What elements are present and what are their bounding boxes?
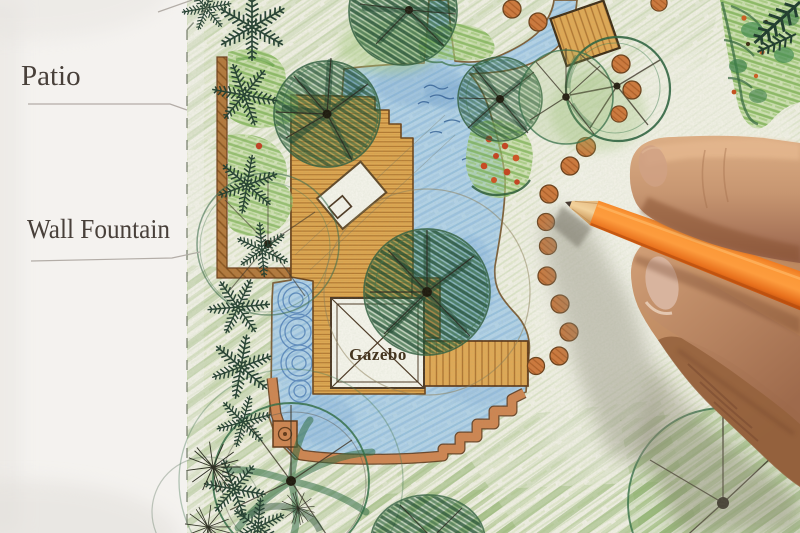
svg-text:Wall Fountain: Wall Fountain xyxy=(27,214,170,244)
svg-text:Patio: Patio xyxy=(21,60,81,92)
